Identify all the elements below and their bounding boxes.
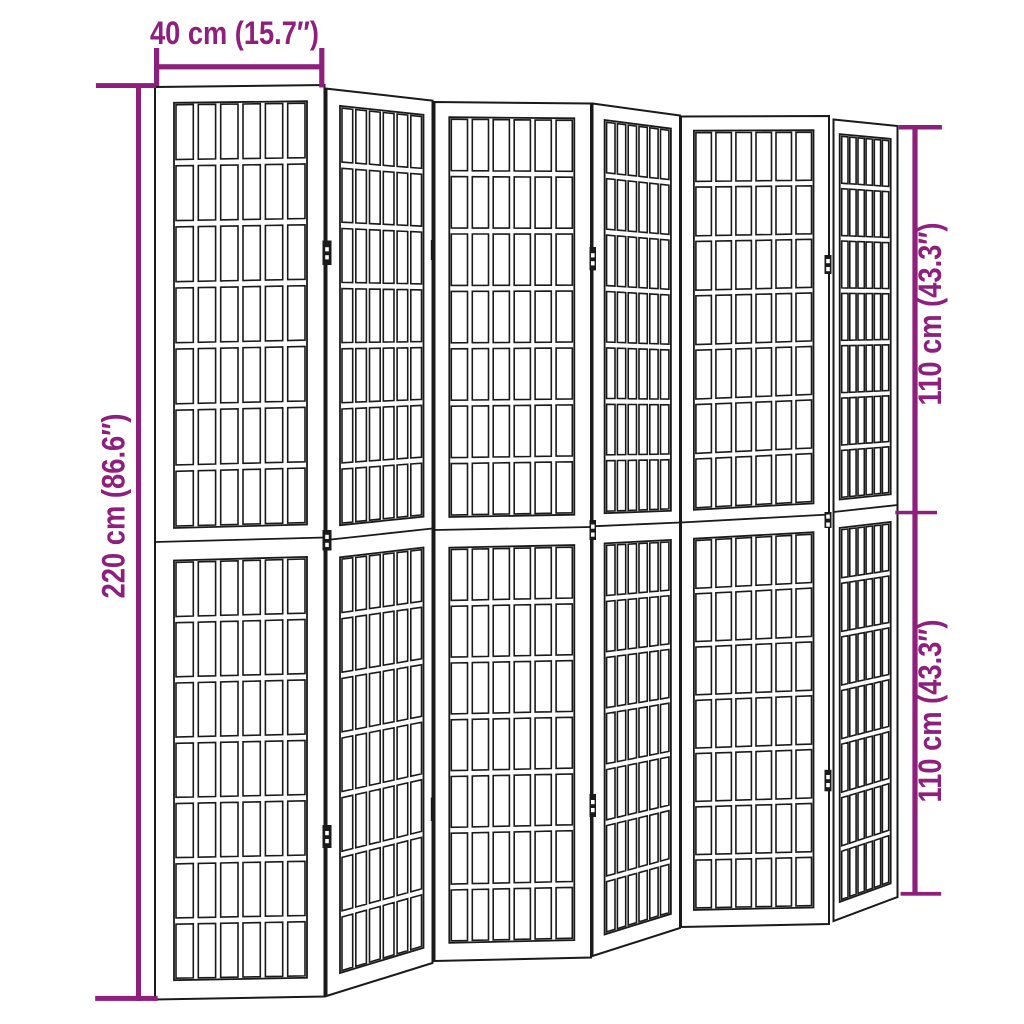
svg-text:220 cm (86.6″): 220 cm (86.6″) xyxy=(96,414,132,599)
svg-text:110 cm (43.3″): 110 cm (43.3″) xyxy=(912,620,948,803)
svg-text:110 cm (43.3″): 110 cm (43.3″) xyxy=(912,223,948,406)
svg-text:40 cm (15.7″): 40 cm (15.7″) xyxy=(150,15,319,51)
